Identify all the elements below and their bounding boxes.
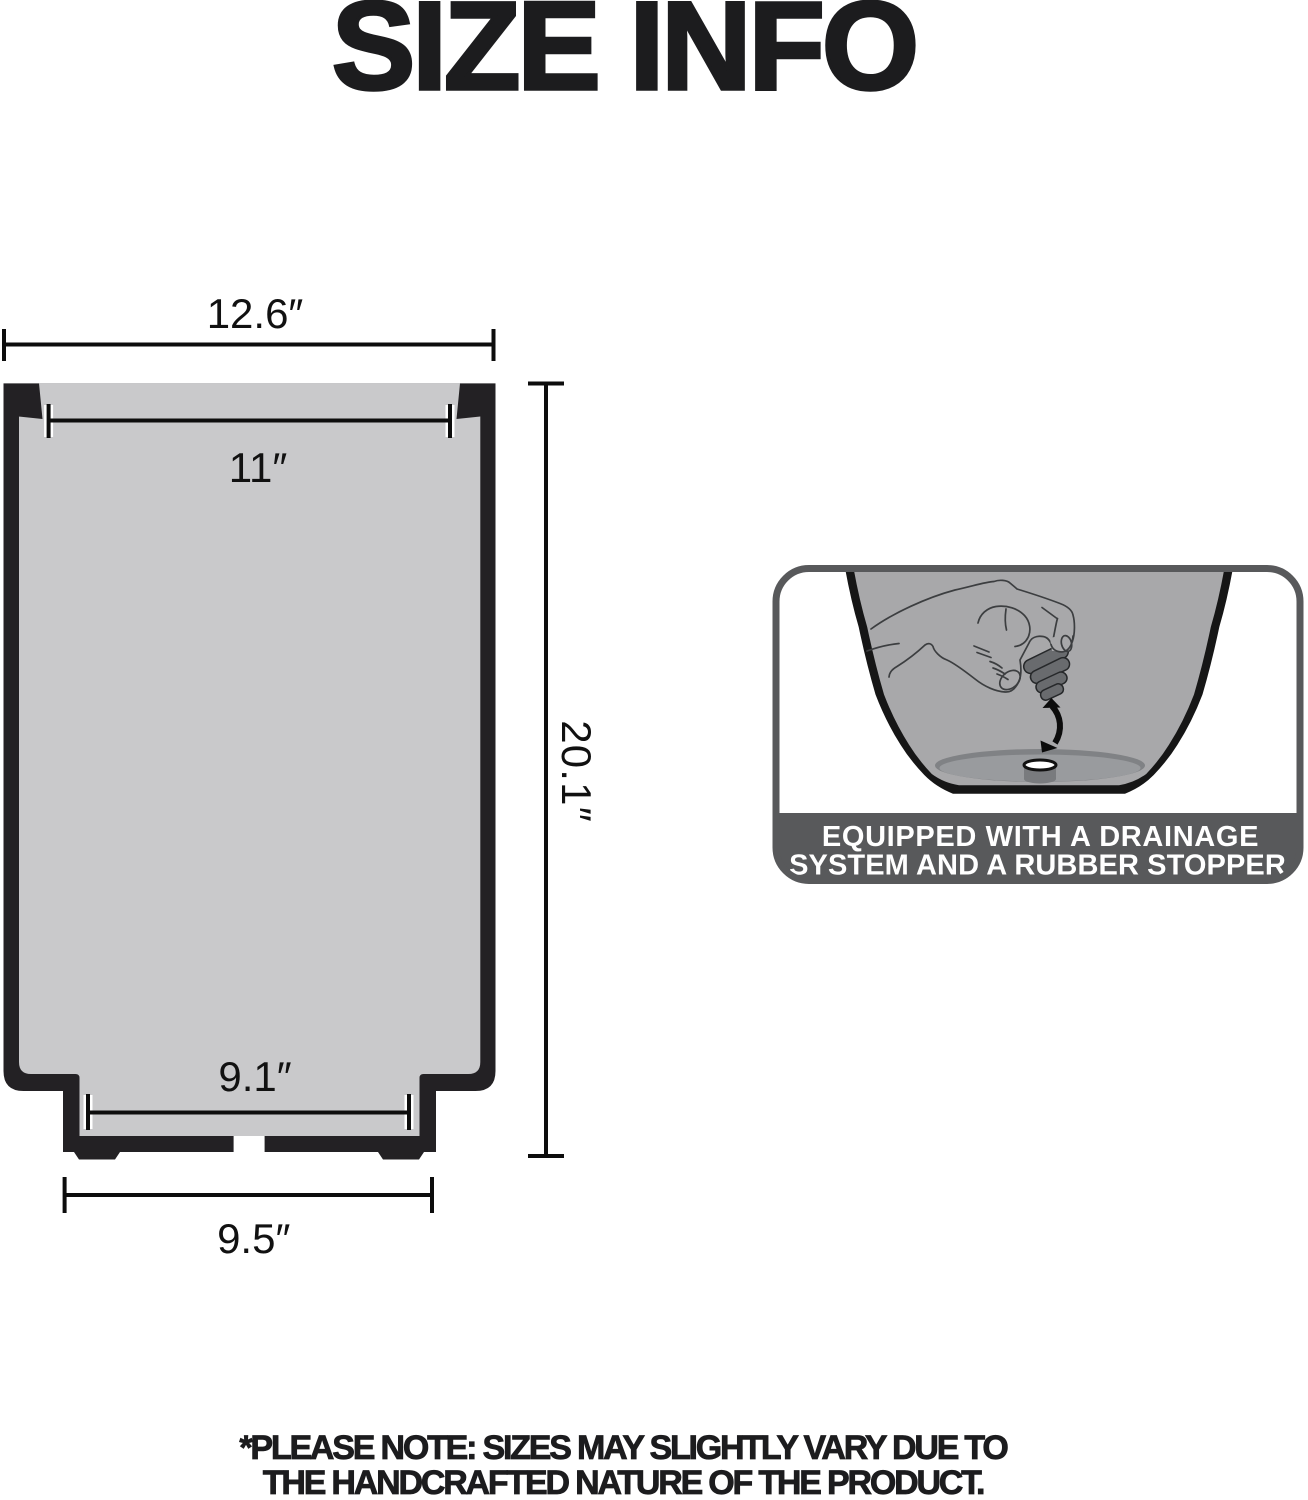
svg-text:SYSTEM AND A RUBBER STOPPER: SYSTEM AND A RUBBER STOPPER xyxy=(789,850,1286,882)
svg-text:12.6″: 12.6″ xyxy=(207,290,304,337)
svg-text:EQUIPPED WITH A DRAINAGE: EQUIPPED WITH A DRAINAGE xyxy=(822,821,1259,853)
svg-text:20.1″: 20.1″ xyxy=(553,720,600,823)
svg-text:9.5″: 9.5″ xyxy=(217,1215,290,1262)
svg-text:9.1″: 9.1″ xyxy=(218,1053,291,1100)
svg-text:11″: 11″ xyxy=(229,444,288,491)
